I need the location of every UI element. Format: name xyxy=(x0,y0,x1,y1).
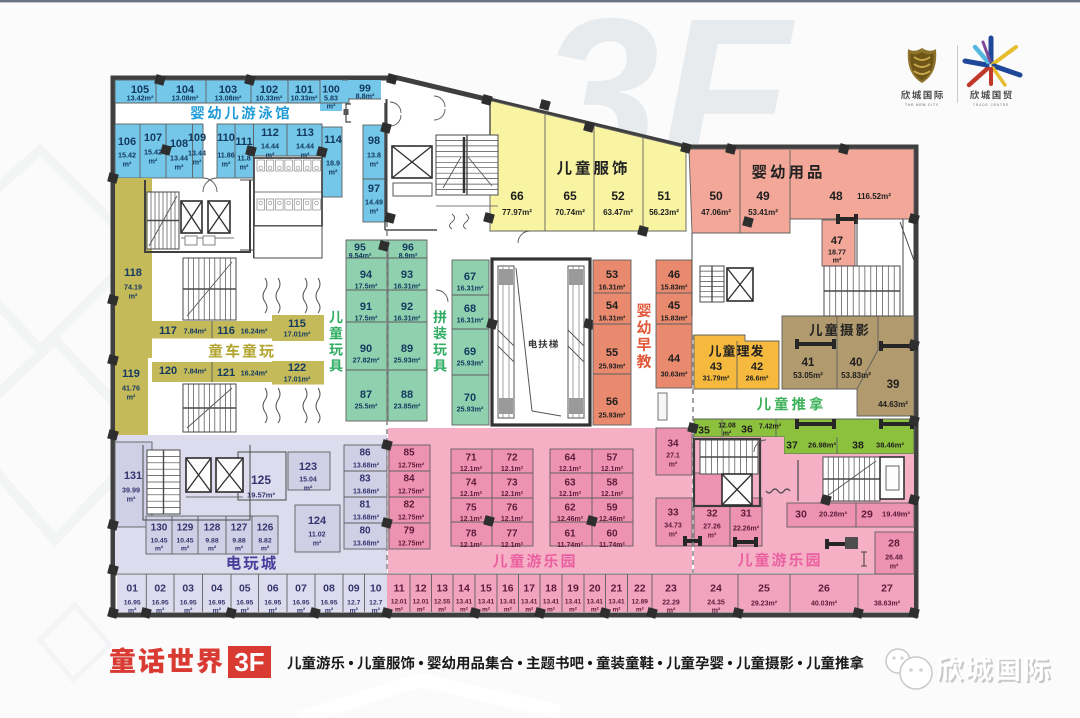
svg-text:m²: m² xyxy=(669,461,678,468)
svg-text:122: 122 xyxy=(288,362,306,374)
svg-text:118: 118 xyxy=(124,267,142,279)
svg-text:16.24m²: 16.24m² xyxy=(241,369,268,378)
svg-text:13.44: 13.44 xyxy=(170,154,188,163)
svg-text:m²: m² xyxy=(261,545,270,552)
svg-text:12.1m²: 12.1m² xyxy=(460,542,483,549)
svg-text:17.01m²: 17.01m² xyxy=(284,330,311,339)
svg-text:21: 21 xyxy=(611,583,623,595)
svg-text:128: 128 xyxy=(204,523,221,534)
svg-text:121: 121 xyxy=(217,367,235,379)
svg-text:13.41: 13.41 xyxy=(500,598,517,605)
svg-text:20: 20 xyxy=(589,583,601,595)
svg-text:70: 70 xyxy=(464,392,476,404)
svg-text:7.84m²: 7.84m² xyxy=(184,367,207,376)
svg-text:16.31m²: 16.31m² xyxy=(457,316,484,325)
svg-text:12.08: 12.08 xyxy=(718,422,736,429)
svg-text:56.23m²: 56.23m² xyxy=(649,208,679,217)
svg-text:m²: m² xyxy=(127,393,136,402)
svg-text:08: 08 xyxy=(323,583,335,595)
svg-text:49: 49 xyxy=(756,189,770,203)
svg-text:19.57m²: 19.57m² xyxy=(247,491,275,500)
svg-text:70.74m²: 70.74m² xyxy=(555,208,585,217)
svg-text:m²: m² xyxy=(208,545,217,552)
svg-text:16.95: 16.95 xyxy=(320,599,337,606)
svg-text:116.52m²: 116.52m² xyxy=(857,192,891,201)
svg-text:80: 80 xyxy=(359,526,371,537)
svg-text:m²: m² xyxy=(438,606,447,613)
svg-text:44: 44 xyxy=(668,353,681,365)
svg-text:25.93m²: 25.93m² xyxy=(599,362,626,371)
svg-text:25.5m²: 25.5m² xyxy=(355,402,378,411)
svg-text:53: 53 xyxy=(606,269,618,281)
svg-text:m²: m² xyxy=(712,608,721,615)
svg-text:25.93m²: 25.93m² xyxy=(394,356,421,365)
svg-text:m²: m² xyxy=(304,485,313,492)
svg-text:12.1m²: 12.1m² xyxy=(559,491,582,498)
svg-text:55: 55 xyxy=(606,347,618,359)
svg-text:16.24m²: 16.24m² xyxy=(241,327,268,336)
svg-text:m²: m² xyxy=(184,607,193,614)
svg-text:85: 85 xyxy=(403,448,415,459)
svg-text:115: 115 xyxy=(288,318,306,330)
svg-text:125: 125 xyxy=(251,473,271,487)
svg-text:13.41: 13.41 xyxy=(478,598,495,605)
svg-text:12.75m²: 12.75m² xyxy=(398,488,425,495)
svg-text:16.95: 16.95 xyxy=(152,599,169,606)
svg-text:09: 09 xyxy=(348,583,360,595)
svg-text:m²: m² xyxy=(327,102,336,111)
svg-text:m²: m² xyxy=(591,606,600,613)
svg-text:18.9: 18.9 xyxy=(326,159,340,168)
svg-text:86: 86 xyxy=(359,448,371,459)
svg-text:m²: m² xyxy=(417,606,426,613)
svg-text:m²: m² xyxy=(723,430,732,437)
svg-text:29.23m²: 29.23m² xyxy=(751,601,778,608)
svg-text:34.73: 34.73 xyxy=(664,523,682,530)
svg-text:74: 74 xyxy=(465,478,477,489)
svg-text:87: 87 xyxy=(360,389,372,401)
svg-text:12.1m²: 12.1m² xyxy=(501,516,524,523)
svg-text:15.42: 15.42 xyxy=(118,151,136,160)
svg-text:25: 25 xyxy=(758,583,770,595)
svg-text:m²: m² xyxy=(325,607,334,614)
svg-text:11.02: 11.02 xyxy=(308,532,325,539)
svg-text:m²: m² xyxy=(149,157,158,166)
svg-text:05: 05 xyxy=(239,583,251,595)
svg-text:11.74m²: 11.74m² xyxy=(557,542,583,549)
svg-text:15.42: 15.42 xyxy=(144,148,162,157)
svg-text:119: 119 xyxy=(122,368,140,380)
svg-text:m²: m² xyxy=(613,606,622,613)
svg-text:12.1m²: 12.1m² xyxy=(601,491,624,498)
svg-text:28: 28 xyxy=(888,538,900,550)
svg-text:63.47m²: 63.47m² xyxy=(603,208,633,217)
svg-text:41: 41 xyxy=(802,357,815,369)
svg-text:113: 113 xyxy=(296,127,314,139)
svg-text:16.31m²: 16.31m² xyxy=(599,314,626,323)
svg-text:m²: m² xyxy=(155,545,164,552)
svg-text:12.7: 12.7 xyxy=(347,599,360,606)
svg-text:81: 81 xyxy=(359,500,371,511)
svg-text:12.01: 12.01 xyxy=(391,598,408,605)
svg-text:16.95: 16.95 xyxy=(236,599,253,606)
svg-text:52: 52 xyxy=(611,189,625,203)
svg-text:59: 59 xyxy=(606,503,618,514)
svg-text:72: 72 xyxy=(506,453,518,464)
svg-text:m²: m² xyxy=(213,607,222,614)
svg-text:97: 97 xyxy=(368,183,380,195)
svg-text:13.41: 13.41 xyxy=(456,598,473,605)
svg-text:13.08m²: 13.08m² xyxy=(215,94,242,103)
svg-text:106: 106 xyxy=(118,136,136,148)
svg-text:92: 92 xyxy=(401,301,413,313)
svg-text:29: 29 xyxy=(861,509,873,521)
svg-text:126: 126 xyxy=(257,523,274,534)
svg-text:10: 10 xyxy=(370,583,382,595)
svg-text:01: 01 xyxy=(126,583,138,595)
svg-text:45: 45 xyxy=(668,300,680,312)
svg-text:107: 107 xyxy=(144,132,162,144)
svg-text:73: 73 xyxy=(506,478,518,489)
svg-text:79: 79 xyxy=(403,526,415,537)
svg-text:25.93m²: 25.93m² xyxy=(457,359,484,368)
svg-text:41.76: 41.76 xyxy=(122,384,140,393)
svg-text:18: 18 xyxy=(545,583,557,595)
svg-text:12: 12 xyxy=(415,583,427,595)
svg-text:77.97m²: 77.97m² xyxy=(502,208,532,217)
svg-text:m²: m² xyxy=(329,168,338,177)
svg-text:16.95: 16.95 xyxy=(208,599,225,606)
svg-text:17: 17 xyxy=(523,583,535,595)
svg-text:42: 42 xyxy=(751,361,763,373)
svg-text:13.68m²: 13.68m² xyxy=(353,488,380,495)
svg-text:13.41: 13.41 xyxy=(543,598,560,605)
svg-text:13.41: 13.41 xyxy=(521,598,538,605)
svg-text:40: 40 xyxy=(850,357,863,369)
svg-text:84: 84 xyxy=(403,474,415,485)
svg-text:39.99: 39.99 xyxy=(122,486,140,495)
svg-text:19: 19 xyxy=(567,583,579,595)
svg-text:65: 65 xyxy=(563,189,577,203)
svg-text:16: 16 xyxy=(502,583,514,595)
svg-text:m²: m² xyxy=(123,160,132,169)
svg-text:98: 98 xyxy=(368,135,380,147)
svg-text:34: 34 xyxy=(667,439,679,450)
svg-text:24.35: 24.35 xyxy=(707,600,725,607)
svg-text:12.55: 12.55 xyxy=(434,598,451,605)
svg-text:38.63m²: 38.63m² xyxy=(874,601,901,608)
svg-text:m²: m² xyxy=(181,545,190,552)
svg-text:7.42m²: 7.42m² xyxy=(759,423,782,430)
svg-text:17.01m²: 17.01m² xyxy=(284,375,311,384)
svg-text:120: 120 xyxy=(159,365,177,377)
svg-text:15.04: 15.04 xyxy=(299,476,317,483)
svg-text:17.5m²: 17.5m² xyxy=(355,282,378,291)
svg-text:40.03m²: 40.03m² xyxy=(811,601,838,608)
svg-text:131: 131 xyxy=(124,470,142,482)
svg-text:13.44: 13.44 xyxy=(188,149,206,158)
svg-text:39: 39 xyxy=(887,379,900,391)
svg-text:47: 47 xyxy=(831,235,843,247)
svg-text:114: 114 xyxy=(324,134,343,146)
svg-text:THE NEW CITY: THE NEW CITY xyxy=(905,103,939,107)
svg-text:15: 15 xyxy=(480,583,492,595)
svg-text:38: 38 xyxy=(852,440,864,452)
svg-text:13.08m²: 13.08m² xyxy=(172,94,199,103)
svg-text:12.1m²: 12.1m² xyxy=(501,466,524,473)
svg-text:10.33m²: 10.33m² xyxy=(256,94,283,103)
svg-text:m²: m² xyxy=(241,607,250,614)
svg-text:26: 26 xyxy=(818,583,830,595)
svg-text:15.83m²: 15.83m² xyxy=(661,283,688,292)
svg-text:m²: m² xyxy=(395,606,404,613)
svg-text:127: 127 xyxy=(231,523,248,534)
svg-text:16.95: 16.95 xyxy=(124,599,141,606)
svg-text:53.05m²: 53.05m² xyxy=(793,371,823,380)
svg-text:8.9m²: 8.9m² xyxy=(399,251,418,260)
svg-text:04: 04 xyxy=(211,583,223,595)
svg-text:10.33m²: 10.33m² xyxy=(291,94,318,103)
svg-text:m²: m² xyxy=(504,606,513,613)
svg-text:m²: m² xyxy=(482,606,491,613)
svg-text:36: 36 xyxy=(741,424,753,436)
svg-text:13.42m²: 13.42m² xyxy=(127,94,154,103)
svg-text:13.68m²: 13.68m² xyxy=(353,541,380,548)
svg-text:16.31m²: 16.31m² xyxy=(394,314,421,323)
svg-text:64: 64 xyxy=(564,453,576,464)
svg-text:26.48: 26.48 xyxy=(885,555,903,562)
svg-text:11.74m²: 11.74m² xyxy=(599,542,625,549)
svg-text:61: 61 xyxy=(564,529,576,540)
svg-text:m²: m² xyxy=(890,564,899,571)
svg-text:12.01: 12.01 xyxy=(413,598,430,605)
svg-text:25.93m²: 25.93m² xyxy=(599,411,626,420)
svg-text:16.31m²: 16.31m² xyxy=(599,283,626,292)
svg-text:m²: m² xyxy=(636,606,645,613)
svg-text:12.1m²: 12.1m² xyxy=(601,466,624,473)
svg-text:63: 63 xyxy=(564,478,576,489)
svg-text:19.49m²: 19.49m² xyxy=(882,510,910,519)
svg-text:m²: m² xyxy=(833,256,842,265)
svg-text:75: 75 xyxy=(465,503,477,514)
svg-text:10.45: 10.45 xyxy=(150,537,167,544)
svg-text:13.68m²: 13.68m² xyxy=(353,462,380,469)
svg-text:06: 06 xyxy=(267,583,279,595)
svg-text:11: 11 xyxy=(393,583,404,595)
svg-text:82: 82 xyxy=(403,500,415,511)
svg-text:53.83m²: 53.83m² xyxy=(841,371,871,380)
svg-text:12.46m²: 12.46m² xyxy=(557,516,584,523)
svg-text:m²: m² xyxy=(175,163,184,172)
svg-text:3F: 3F xyxy=(234,647,264,677)
svg-text:13.8: 13.8 xyxy=(367,151,381,160)
svg-text:76: 76 xyxy=(506,503,518,514)
svg-text:124: 124 xyxy=(308,515,327,527)
svg-text:12.1m²: 12.1m² xyxy=(460,466,483,473)
svg-text:27.26: 27.26 xyxy=(703,524,721,531)
svg-text:12.46m²: 12.46m² xyxy=(599,516,626,523)
svg-text:57: 57 xyxy=(606,453,618,464)
svg-text:27: 27 xyxy=(881,583,893,595)
svg-text:78: 78 xyxy=(465,529,477,540)
svg-text:m²: m² xyxy=(128,607,137,614)
svg-text:m²: m² xyxy=(525,606,534,613)
svg-text:12.1m²: 12.1m² xyxy=(501,542,524,549)
svg-text:44.63m²: 44.63m² xyxy=(878,400,908,409)
svg-text:12.1m²: 12.1m² xyxy=(460,491,483,498)
svg-text:12.89: 12.89 xyxy=(632,598,649,605)
svg-text:94: 94 xyxy=(360,269,373,281)
svg-text:TRADE CENTRE: TRADE CENTRE xyxy=(973,103,1009,107)
svg-text:74.19: 74.19 xyxy=(124,283,142,292)
svg-text:13: 13 xyxy=(436,583,448,595)
svg-text:31.79m²: 31.79m² xyxy=(703,374,730,383)
svg-text:53.41m²: 53.41m² xyxy=(748,208,778,217)
svg-text:46: 46 xyxy=(668,269,680,281)
svg-text:67: 67 xyxy=(464,271,476,283)
svg-text:77: 77 xyxy=(506,529,518,540)
svg-text:7.84m²: 7.84m² xyxy=(184,327,207,336)
svg-text:12.75m²: 12.75m² xyxy=(398,462,425,469)
svg-text:m²: m² xyxy=(370,160,379,169)
svg-text:90: 90 xyxy=(360,343,372,355)
svg-text:13.41: 13.41 xyxy=(565,598,582,605)
svg-text:16.31m²: 16.31m² xyxy=(394,282,421,291)
svg-text:25.93m²: 25.93m² xyxy=(457,405,484,414)
svg-text:129: 129 xyxy=(177,523,194,534)
svg-text:14: 14 xyxy=(458,583,470,595)
svg-text:32: 32 xyxy=(706,509,718,520)
svg-text:m²: m² xyxy=(708,533,717,540)
svg-text:16.95: 16.95 xyxy=(180,599,197,606)
svg-text:89: 89 xyxy=(401,343,413,355)
svg-text:12.1m²: 12.1m² xyxy=(460,516,483,523)
svg-text:38.46m²: 38.46m² xyxy=(876,441,904,450)
svg-text:108: 108 xyxy=(170,138,188,150)
svg-text:20.28m²: 20.28m² xyxy=(819,510,847,519)
svg-text:23.85m²: 23.85m² xyxy=(394,402,421,411)
svg-text:03: 03 xyxy=(182,583,194,595)
svg-text:116: 116 xyxy=(217,325,235,337)
svg-text:35: 35 xyxy=(698,425,710,437)
svg-text:56: 56 xyxy=(606,396,618,408)
svg-text:69: 69 xyxy=(464,346,476,358)
svg-text:31: 31 xyxy=(740,509,752,520)
svg-text:11.86: 11.86 xyxy=(217,151,235,160)
svg-text:23: 23 xyxy=(665,583,677,595)
svg-text:88: 88 xyxy=(401,389,413,401)
svg-text:m²: m² xyxy=(547,606,556,613)
svg-text:m²: m² xyxy=(222,160,231,169)
svg-text:112: 112 xyxy=(261,127,279,139)
svg-text:9.88: 9.88 xyxy=(232,537,245,544)
svg-text:22.29: 22.29 xyxy=(662,600,680,607)
svg-text:13.41: 13.41 xyxy=(608,598,625,605)
svg-text:15.83m²: 15.83m² xyxy=(661,314,688,323)
svg-text:16.95: 16.95 xyxy=(264,599,281,606)
svg-text:33: 33 xyxy=(667,508,679,519)
svg-text:02: 02 xyxy=(154,583,166,595)
svg-text:50: 50 xyxy=(709,189,723,203)
svg-text:14.44: 14.44 xyxy=(261,142,279,151)
svg-text:123: 123 xyxy=(299,461,317,473)
svg-text:m²: m² xyxy=(156,607,165,614)
svg-text:m²: m² xyxy=(370,207,379,216)
svg-text:91: 91 xyxy=(360,301,372,313)
svg-text:83: 83 xyxy=(359,474,371,485)
svg-text:66: 66 xyxy=(510,189,524,203)
svg-text:117: 117 xyxy=(159,325,177,337)
svg-text:110: 110 xyxy=(217,132,235,144)
svg-text:26.6m²: 26.6m² xyxy=(746,374,769,383)
svg-text:8.82: 8.82 xyxy=(258,537,271,544)
svg-text:68: 68 xyxy=(464,303,476,315)
svg-text:12.1m²: 12.1m² xyxy=(559,466,582,473)
svg-text:m²: m² xyxy=(350,607,359,614)
svg-text:12.75m²: 12.75m² xyxy=(398,515,425,522)
svg-text:62: 62 xyxy=(564,503,576,514)
svg-text:m²: m² xyxy=(193,158,202,167)
svg-text:12.1m²: 12.1m² xyxy=(501,491,524,498)
svg-text:48: 48 xyxy=(829,189,843,203)
svg-text:26.98m²: 26.98m² xyxy=(808,441,836,450)
svg-text:16.31m²: 16.31m² xyxy=(457,284,484,293)
svg-text:54: 54 xyxy=(606,300,619,312)
svg-text:m²: m² xyxy=(569,606,578,613)
svg-text:9.54m²: 9.54m² xyxy=(349,251,372,260)
svg-text:30.63m²: 30.63m² xyxy=(661,370,688,379)
svg-text:58: 58 xyxy=(606,478,618,489)
svg-text:51: 51 xyxy=(657,189,671,203)
svg-text:m²: m² xyxy=(669,532,678,539)
svg-text:m²: m² xyxy=(313,541,322,548)
svg-text:10.45: 10.45 xyxy=(176,537,193,544)
svg-text:109: 109 xyxy=(188,132,206,144)
svg-text:27.82m²: 27.82m² xyxy=(353,356,380,365)
svg-text:24: 24 xyxy=(710,583,722,595)
svg-text:m²: m² xyxy=(297,607,306,614)
svg-text:8.8m²: 8.8m² xyxy=(356,92,375,101)
svg-text:60: 60 xyxy=(606,529,618,540)
svg-text:71: 71 xyxy=(465,453,477,464)
svg-text:14.49: 14.49 xyxy=(365,198,383,207)
svg-text:93: 93 xyxy=(401,269,413,281)
svg-text:12.75m²: 12.75m² xyxy=(398,541,425,548)
svg-text:9.88: 9.88 xyxy=(205,537,218,544)
svg-text:16.95: 16.95 xyxy=(292,599,309,606)
svg-text:22.26m²: 22.26m² xyxy=(733,526,760,533)
svg-text:m²: m² xyxy=(235,545,244,552)
svg-text:130: 130 xyxy=(151,523,168,534)
svg-text:m²: m² xyxy=(240,163,249,172)
svg-text:13.41: 13.41 xyxy=(587,598,604,605)
svg-text:07: 07 xyxy=(295,583,307,595)
svg-text:m²: m² xyxy=(269,607,278,614)
svg-text:27.1: 27.1 xyxy=(666,452,680,459)
svg-text:12.7: 12.7 xyxy=(369,599,382,606)
svg-text:m²: m² xyxy=(129,292,138,301)
svg-text:47.06m²: 47.06m² xyxy=(701,208,731,217)
svg-text:17.5m²: 17.5m² xyxy=(355,314,378,323)
svg-text:m²: m² xyxy=(372,607,381,614)
svg-text:22: 22 xyxy=(634,583,646,595)
svg-text:14.44: 14.44 xyxy=(296,142,314,151)
svg-text:m²: m² xyxy=(460,606,469,613)
svg-text:43: 43 xyxy=(710,361,722,373)
svg-text:m²: m² xyxy=(667,608,676,615)
svg-text:m²: m² xyxy=(127,495,136,504)
svg-text:30: 30 xyxy=(795,509,807,521)
